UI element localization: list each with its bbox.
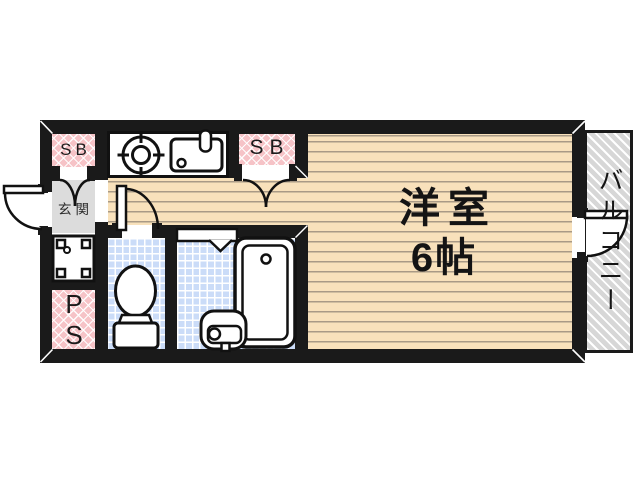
genkan-label: 玄関 bbox=[52, 199, 95, 217]
shoe-box-mid-label: SB bbox=[238, 131, 295, 165]
laundry-pan-area bbox=[52, 233, 95, 282]
toilet-floor bbox=[107, 238, 165, 349]
balcony-jamb-top bbox=[577, 208, 588, 218]
toilet-doorway bbox=[122, 225, 152, 238]
entrance-door-arc bbox=[5, 193, 42, 229]
wall-genkan-kitchen-lower bbox=[95, 222, 108, 349]
entrance-jamb-bottom bbox=[38, 226, 48, 235]
floor-plan: SB SB 玄関 PS 洋室 6帖 バルコニー bbox=[0, 0, 640, 480]
sb2-jamb-right bbox=[289, 164, 297, 181]
shoe-box-top-door-strip bbox=[60, 167, 87, 180]
wall-bottom bbox=[40, 349, 585, 363]
shoe-box-mid-door-strip bbox=[242, 165, 289, 180]
entrance-opening bbox=[40, 192, 52, 227]
balcony-jamb-bottom bbox=[577, 252, 588, 262]
wall-left bbox=[40, 120, 52, 363]
sb2-jamb-left bbox=[234, 164, 242, 181]
toilet-jamb-left bbox=[112, 223, 122, 238]
kitchen-counter bbox=[107, 131, 229, 178]
main-room-name: 洋室 bbox=[344, 181, 544, 227]
bathroom-floor bbox=[177, 238, 295, 349]
balcony-label: バルコニー bbox=[588, 140, 630, 343]
pipe-shaft-label: PS bbox=[52, 290, 95, 349]
genkan-kitchen-opening bbox=[95, 180, 108, 222]
wall-bath-room bbox=[295, 238, 308, 349]
toilet-jamb-right bbox=[152, 223, 162, 238]
sb1-jamb-right bbox=[87, 166, 95, 181]
entrance-jamb-top bbox=[38, 184, 48, 193]
sb1-jamb-left bbox=[52, 166, 60, 181]
wall-toilet-bath bbox=[165, 238, 177, 349]
main-room-size: 6帖 bbox=[344, 231, 544, 277]
shoe-box-top-label: SB bbox=[52, 133, 95, 167]
